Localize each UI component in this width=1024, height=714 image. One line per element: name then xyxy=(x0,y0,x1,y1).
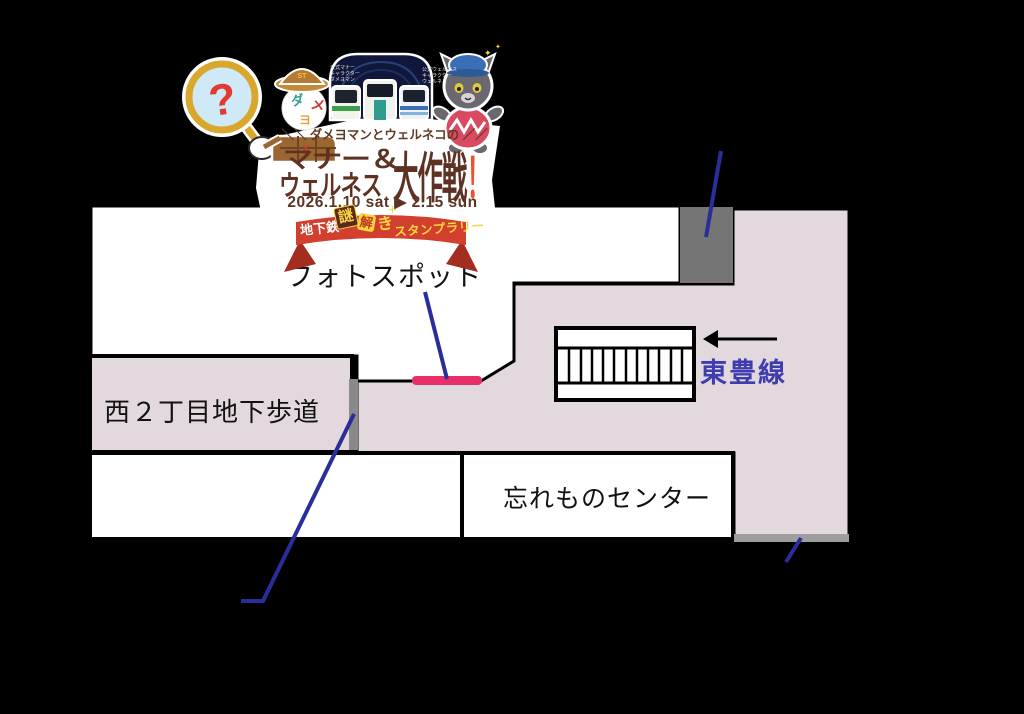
hat-badge: ST xyxy=(298,73,308,80)
ribbon-prefix: 地下鉄 xyxy=(299,216,340,239)
cat-caption: 公式ウェルネス キャラクター ウェルネコ xyxy=(422,67,457,85)
stairs-icon xyxy=(556,328,694,400)
poster-canvas: フォトスポット 西２丁目地下歩道 東豊線 忘れものセンター ? xyxy=(0,0,1024,714)
train-right xyxy=(400,86,428,120)
elevator-block xyxy=(680,207,733,283)
toho-line-label: 東豊線 xyxy=(700,351,787,390)
svg-text:ダ: ダ xyxy=(290,92,305,109)
lower-left-room xyxy=(90,453,462,539)
train-center xyxy=(364,80,396,120)
event-logo: ? ✕ ダ メ ヨ ST xyxy=(180,40,525,280)
subway-trains-icon xyxy=(330,54,432,120)
ribbon-plus-sparkle-icon: ＋ xyxy=(388,203,397,216)
south-exit-strip xyxy=(734,534,849,542)
sparkle-icon-2: ✦ xyxy=(495,43,501,51)
train-left xyxy=(332,86,360,120)
underpass-label: 西２丁目地下歩道 xyxy=(104,392,320,429)
sparkle-icon: ✦ xyxy=(484,48,492,58)
ribbon-tile-toki: 解 xyxy=(357,213,377,233)
ribbon-tile-nazo: 謎 xyxy=(333,204,359,230)
lost-and-found-label: 忘れものセンター xyxy=(503,479,711,515)
detective-caption: 公式マナー キャラクター ダメヨマン xyxy=(330,65,360,83)
